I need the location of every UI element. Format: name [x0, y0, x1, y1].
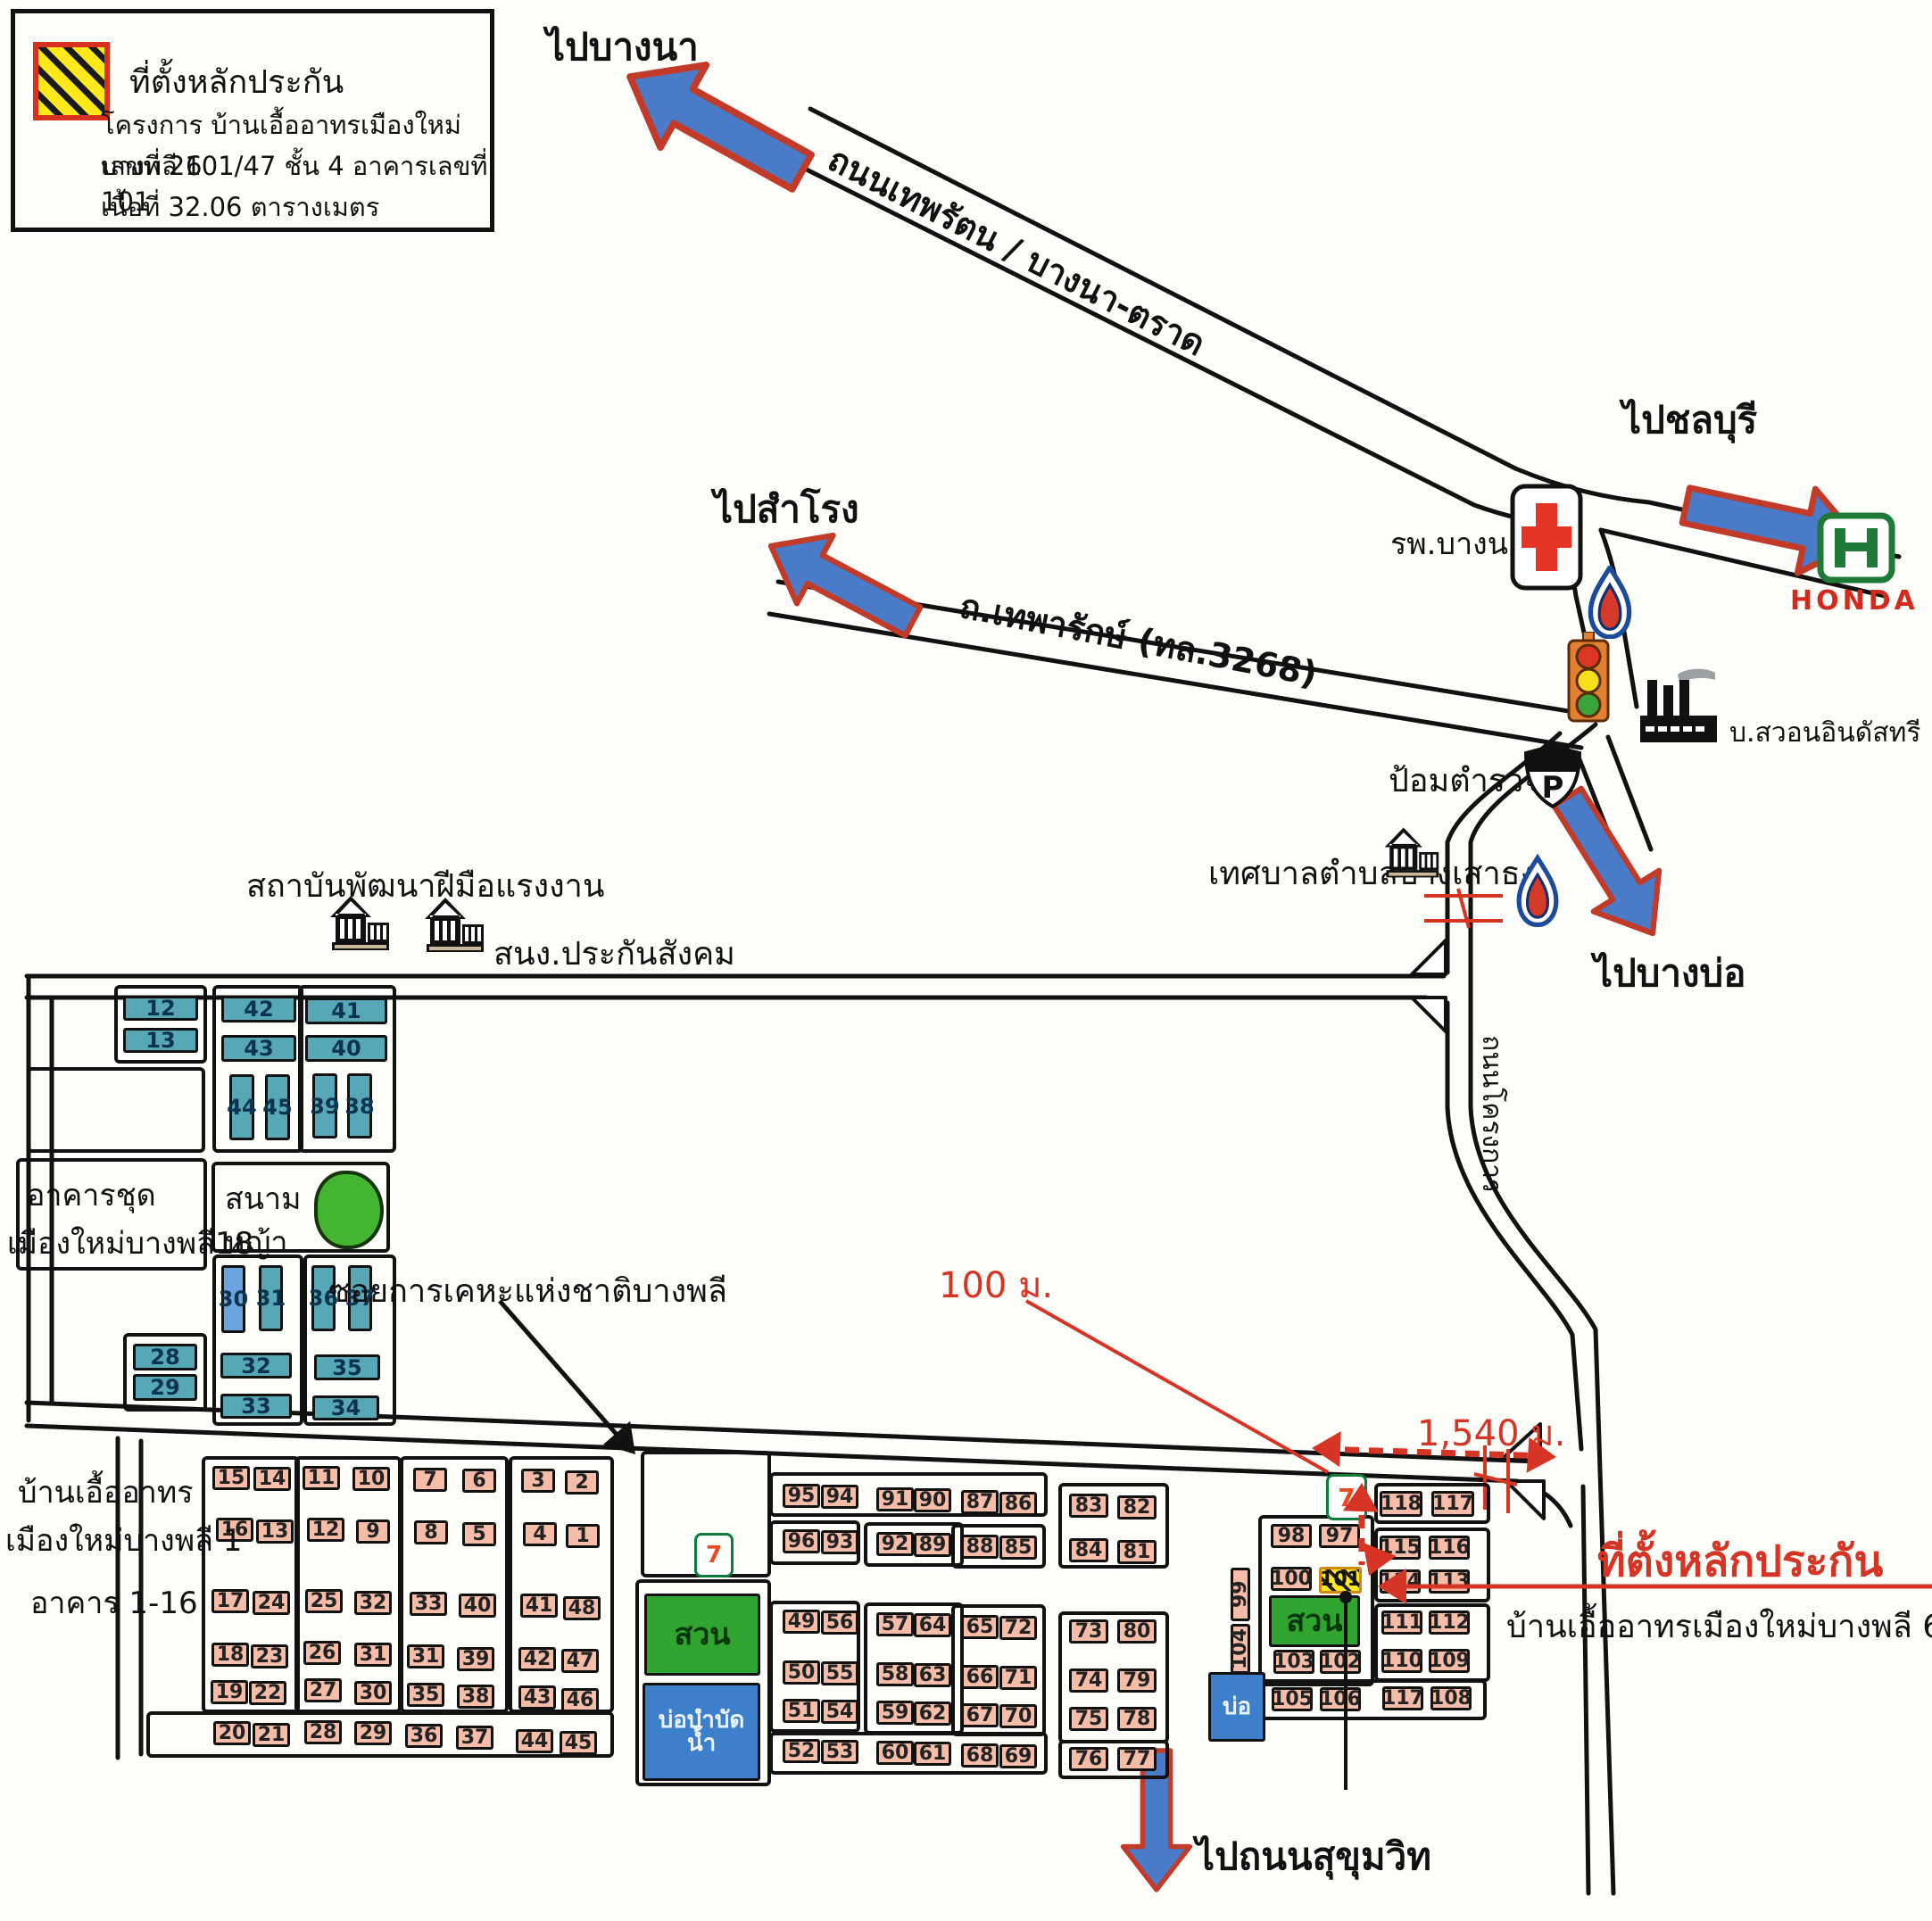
- annotation-layer: [0, 0, 1932, 1921]
- map-canvas: ที่ตั้งหลักประกัน โครงการ บ้านเอื้ออาทรเ…: [0, 0, 1932, 1921]
